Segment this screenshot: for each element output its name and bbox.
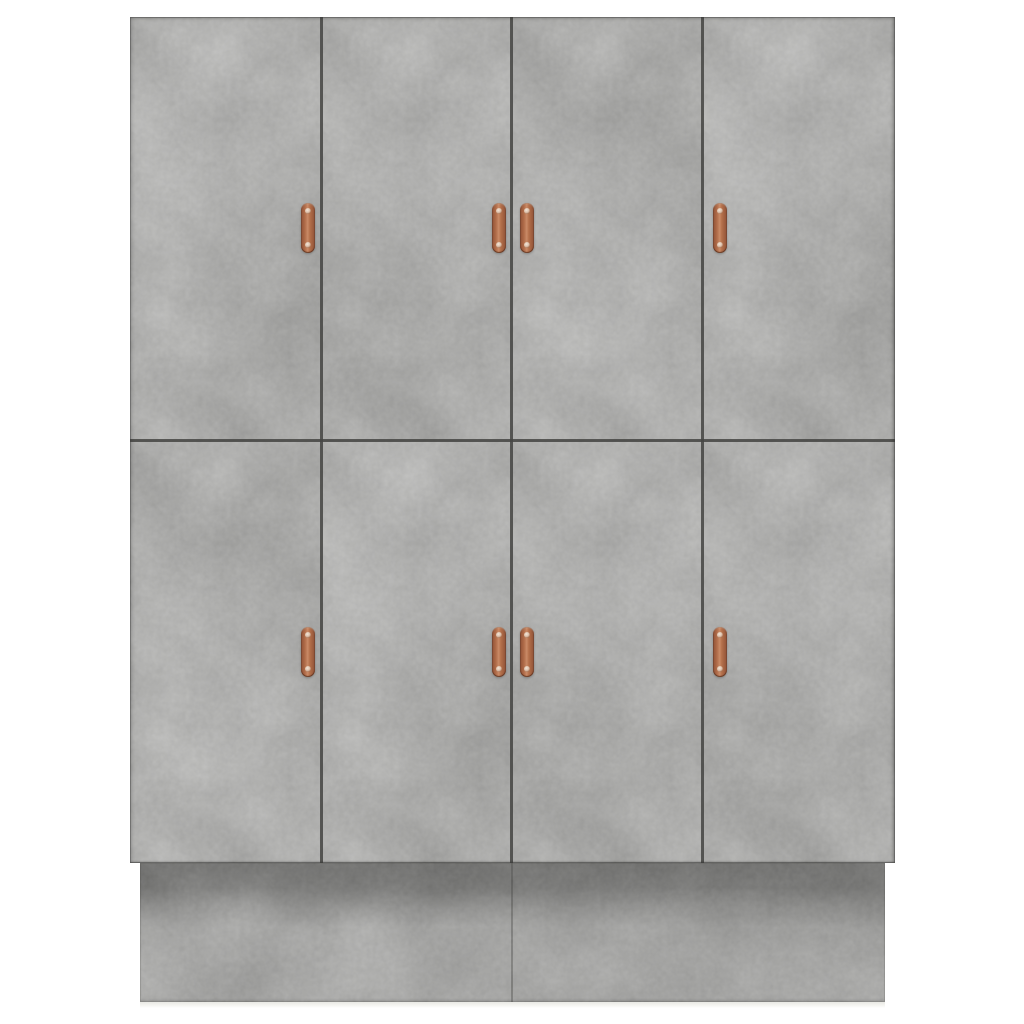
door-edge-bevel [130, 441, 322, 863]
wardrobe-door-bottom-1 [130, 441, 322, 863]
product-photo [0, 0, 1024, 1024]
door-edge-bevel [322, 441, 512, 863]
door-edge-bevel [703, 17, 895, 441]
wardrobe-door-top-3 [512, 17, 703, 441]
wardrobe-door-bottom-4 [703, 441, 895, 863]
door-edge-bevel [512, 441, 703, 863]
plinth-edge-shading [140, 863, 885, 1002]
wardrobe-base-plinth [140, 863, 885, 1002]
ground-shadow [140, 1002, 885, 1008]
wardrobe-door-top-2 [322, 17, 512, 441]
door-edge-bevel [322, 17, 512, 441]
wardrobe-cabinet [130, 17, 895, 863]
wardrobe-door-top-4 [703, 17, 895, 441]
wardrobe-door-bottom-3 [512, 441, 703, 863]
door-edge-bevel [512, 17, 703, 441]
wardrobe-door-bottom-2 [322, 441, 512, 863]
door-edge-bevel [130, 17, 322, 441]
door-seam-horizontal [130, 439, 895, 442]
door-edge-bevel [703, 441, 895, 863]
wardrobe-door-top-1 [130, 17, 322, 441]
